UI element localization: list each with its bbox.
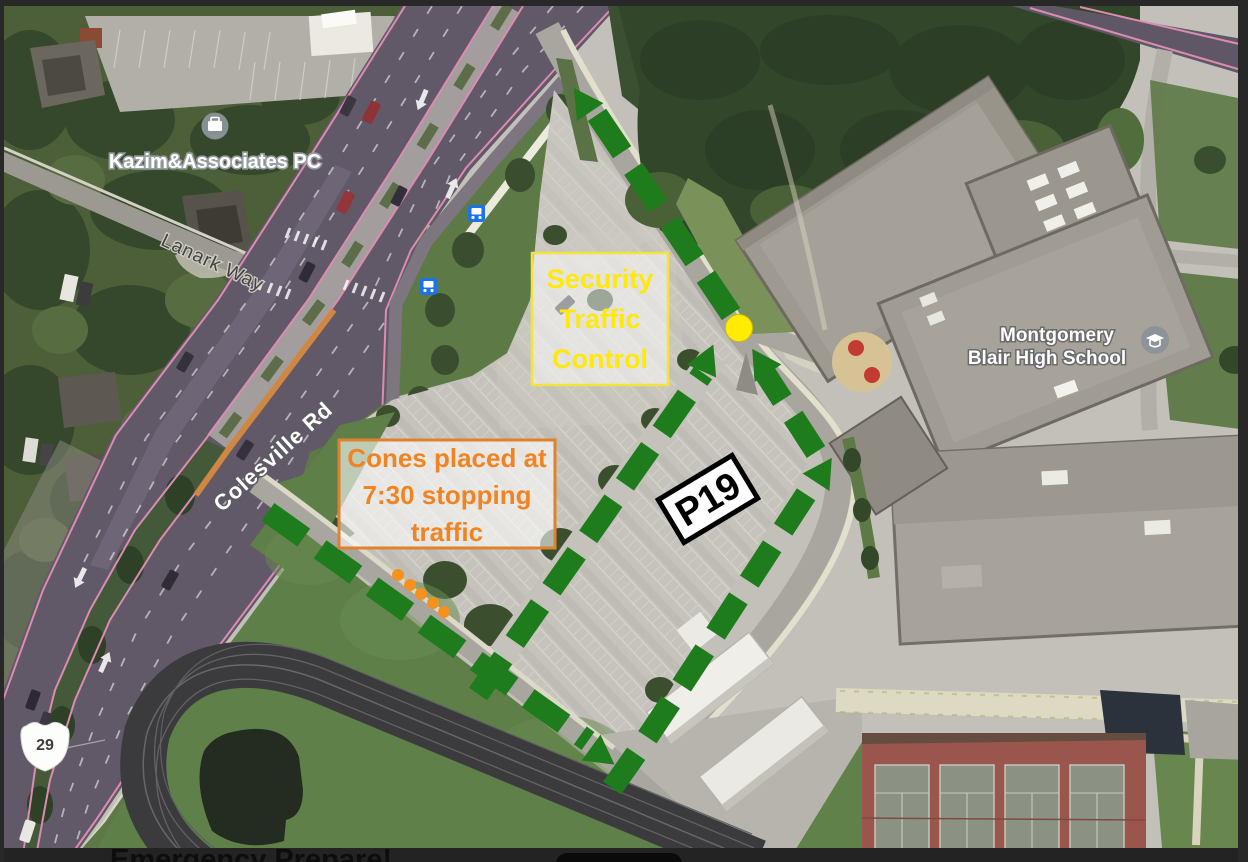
svg-text:Blair High School: Blair High School: [968, 348, 1126, 369]
svg-text:Control: Control: [552, 344, 648, 374]
svg-text:Montgomery: Montgomery: [1000, 325, 1114, 346]
svg-text:Security: Security: [547, 264, 654, 294]
svg-text:Emergency Prepare!: Emergency Prepare!: [110, 844, 392, 862]
svg-text:Kazim&Associates PC: Kazim&Associates PC: [109, 151, 321, 173]
svg-text:Traffic: Traffic: [559, 304, 640, 334]
svg-text:traffic: traffic: [411, 517, 483, 547]
svg-text:Cones placed at: Cones placed at: [347, 443, 547, 473]
svg-text:7:30 stopping: 7:30 stopping: [362, 480, 531, 510]
svg-text:29: 29: [36, 737, 54, 754]
